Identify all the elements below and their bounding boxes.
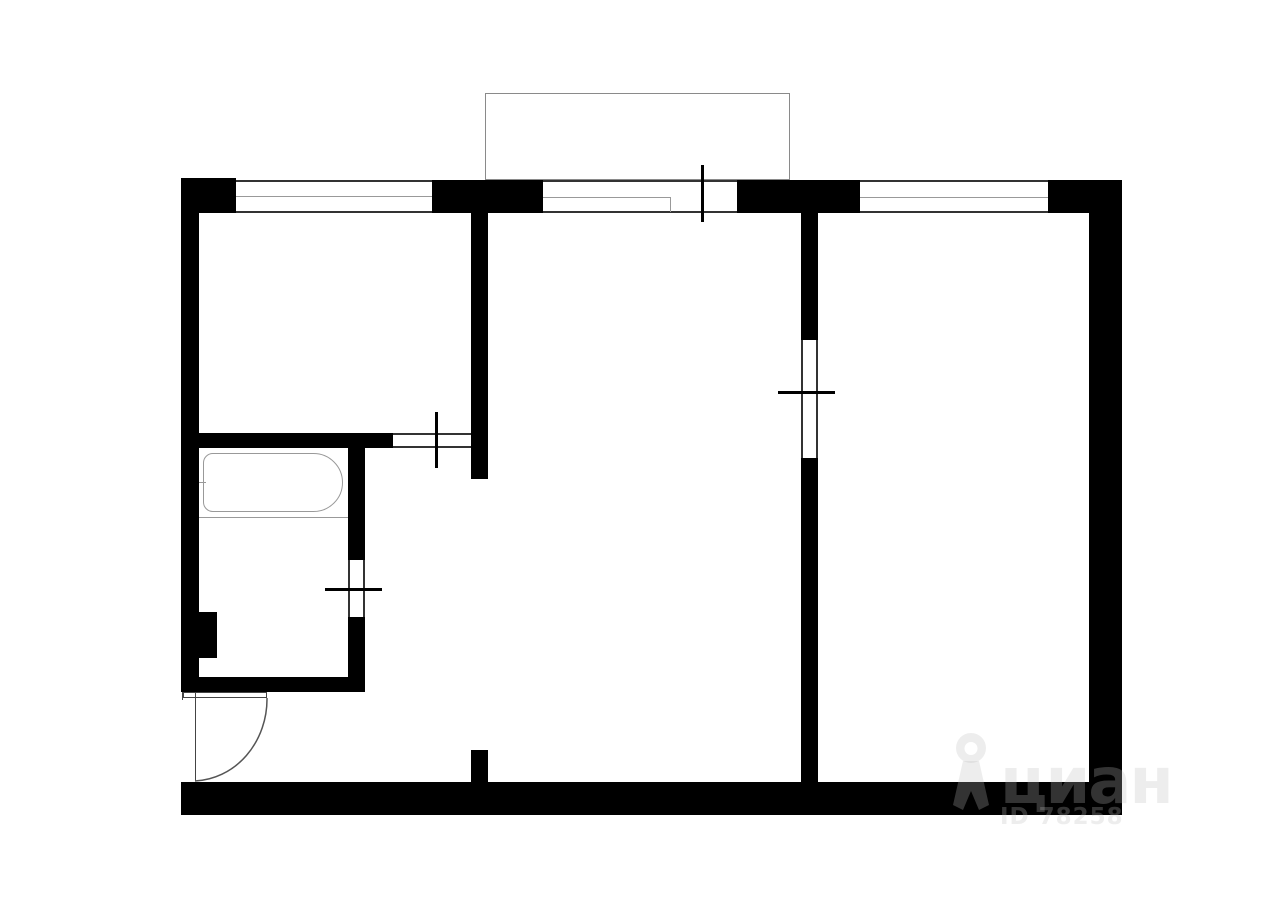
partition-bathroom-right-upper [348, 448, 365, 560]
floorplan-layer [0, 0, 1280, 905]
right-outer-wall [1089, 180, 1122, 815]
door-room2-tick [778, 391, 835, 394]
balcony-door-bottom-line [671, 211, 737, 213]
window-right-bottom-line [860, 211, 1048, 213]
balcony-door-tick [701, 165, 704, 222]
partition-room1-bathroom [181, 433, 393, 448]
door-room1-bottom-line [393, 446, 471, 448]
window-right-top-line [860, 180, 1048, 182]
window-mid-bottom-line [543, 211, 671, 213]
door-room2-left-line [801, 340, 803, 458]
duct-pilaster [199, 612, 217, 658]
partition-rooms-divider-lower [801, 458, 818, 782]
window-left-top-line [236, 180, 432, 182]
door-room1-tick [435, 412, 438, 468]
top-wall-segment-3 [737, 180, 860, 213]
window-mid-end-line [670, 197, 671, 212]
window-mid-mid-line [543, 197, 671, 198]
window-left-bottom-line [236, 211, 432, 213]
bathtub [203, 453, 343, 512]
door-room1-top-line [393, 433, 471, 435]
floorplan-image: циан ID 78258 [0, 0, 1280, 905]
entry-opening-edge-tick [182, 692, 183, 700]
bottom-outer-wall [181, 782, 1122, 815]
balcony-outline [485, 93, 790, 180]
top-wall-segment-2 [432, 180, 543, 213]
partition-bathroom-bottom [181, 677, 365, 692]
window-left-mid-line [236, 196, 432, 197]
door-room2-right-line [816, 340, 818, 458]
hall-stub-wall [471, 750, 488, 782]
door-bathroom-tick [325, 588, 382, 591]
balcony-door-top-line [671, 180, 737, 182]
entry-door-jamb-line [195, 692, 196, 781]
window-mid-top-line [543, 180, 671, 182]
partition-rooms-divider-upper [801, 213, 818, 340]
partition-room1-hall [471, 213, 488, 479]
window-right-mid-line [860, 197, 1048, 198]
bathtub-shelf-line [199, 517, 348, 518]
